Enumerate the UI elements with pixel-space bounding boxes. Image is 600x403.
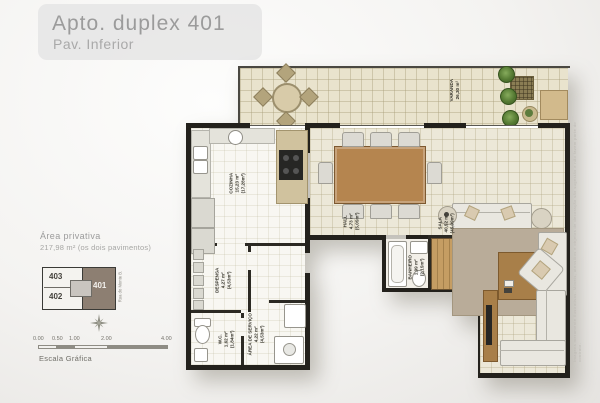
pantry-shelf [193, 275, 204, 286]
pantry-shelf [193, 262, 204, 273]
kitchen-sink [193, 160, 208, 174]
wall [186, 365, 310, 370]
wc-sink [194, 348, 208, 362]
disclaimer-fine-print: Imagens meramente ilustrativas. Móveis, … [572, 118, 581, 362]
dining-chair [427, 162, 442, 184]
wall [248, 270, 251, 312]
toilet-icon [195, 325, 210, 344]
side-table-center [444, 212, 449, 217]
dining-chair [398, 204, 420, 219]
washer-door [283, 343, 296, 356]
pantry-shelf [193, 288, 204, 299]
tv-icon [486, 305, 492, 345]
sofa-cushion-line [452, 212, 530, 213]
wall [191, 310, 241, 313]
burner [283, 155, 289, 161]
kitchen-round-fixture [228, 130, 243, 145]
toilet-icon [412, 270, 426, 287]
scale-tick: 1.00 [69, 336, 80, 342]
varanda-round-table [272, 83, 302, 113]
wall [248, 246, 251, 252]
l-sofa-horizontal [500, 340, 566, 366]
wall [478, 373, 570, 378]
refrigerator [191, 198, 215, 228]
wall [269, 300, 305, 303]
keyplan-402: 402 [49, 292, 62, 301]
dining-table [334, 146, 426, 204]
scale-bar [38, 345, 168, 349]
burner [283, 168, 289, 174]
varanda-bench [540, 90, 568, 120]
keyplan-401: 401 [93, 281, 106, 290]
keyplan-403: 403 [49, 272, 62, 281]
plant-icon [500, 88, 517, 105]
kitchen-sink [193, 146, 208, 160]
scale-tick: 4.00 [161, 336, 172, 342]
bathroom-sink [410, 241, 428, 254]
keyplan-core [70, 280, 92, 297]
plant-icon [498, 66, 515, 83]
private-area-value: 217,98 m² (os dois pavimentos) [40, 243, 151, 252]
sofa [452, 203, 532, 231]
burner [293, 168, 299, 174]
wall [305, 243, 310, 253]
dining-chair [318, 162, 333, 184]
private-area-label: Área privativa [40, 231, 101, 241]
dining-chair [370, 204, 392, 219]
scale-segment [74, 345, 108, 349]
dining-chair [342, 132, 364, 147]
scale-segment [108, 345, 168, 349]
bathtub-inner [391, 245, 404, 283]
floor-plan: VARANDA 26,30 m² COZINHA 15,23 m² (17,28… [0, 0, 600, 403]
scale-segment [38, 345, 57, 349]
table-decor [504, 288, 512, 293]
table-decor [504, 280, 514, 287]
side-table [531, 208, 552, 229]
scale-tick: 2.00 [101, 336, 112, 342]
wall [241, 313, 244, 318]
plant-icon [525, 109, 533, 117]
dining-chair [370, 132, 392, 147]
varanda-rail-left [238, 66, 240, 125]
floor-plan-page: Apto. duplex 401 Pav. Inferior [0, 0, 600, 403]
scale-segment [57, 345, 74, 349]
sofa-cushion-line [500, 350, 564, 351]
street-label: Rua do Monte B. [118, 264, 123, 310]
laundry-tub [284, 304, 306, 328]
cooktop [279, 150, 303, 180]
wall [241, 336, 244, 365]
dining-chair [398, 132, 420, 147]
wall [245, 243, 305, 246]
scale-tick: 0.00 [33, 336, 44, 342]
pantry-shelf [193, 300, 204, 310]
pantry-shelf [193, 249, 204, 260]
scale-label: Escala Gráfica [39, 354, 92, 363]
compass-icon [90, 314, 108, 332]
wall [310, 235, 385, 240]
scale-tick: 0.50 [52, 336, 63, 342]
burner [293, 155, 299, 161]
dining-chair [342, 204, 364, 219]
